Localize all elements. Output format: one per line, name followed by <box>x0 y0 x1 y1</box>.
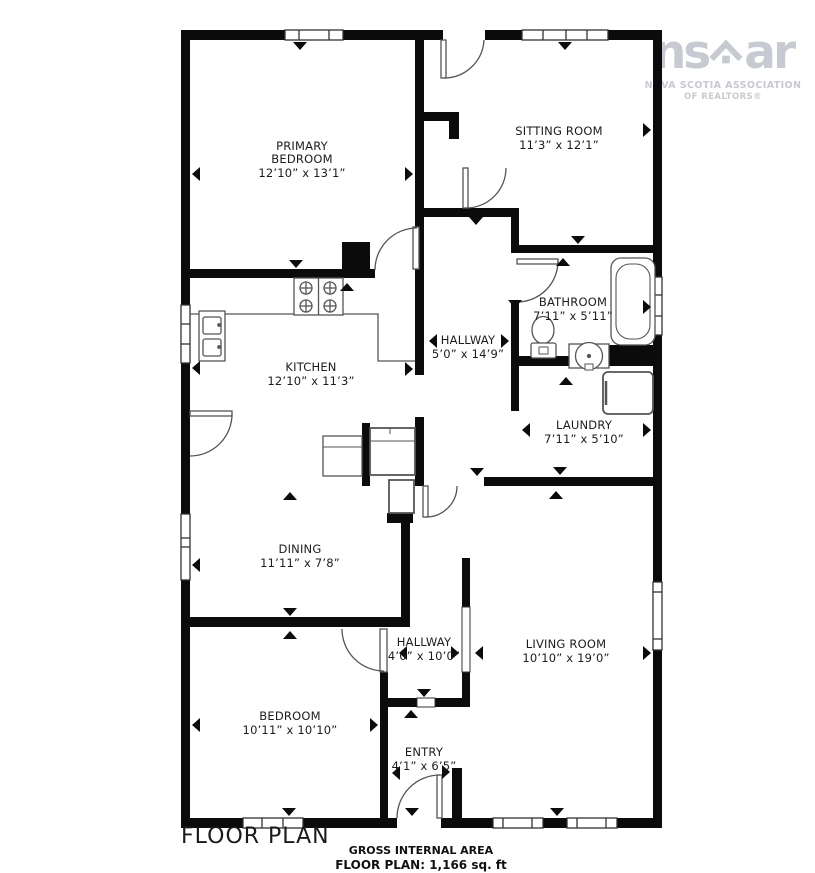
svg-text:10’11” x 10’10”: 10’11” x 10’10” <box>243 723 338 737</box>
svg-text:LAUNDRY: LAUNDRY <box>556 418 613 432</box>
door-sitting-room-entry <box>441 40 484 78</box>
room-label-hallway-upper: HALLWAY 5’0” x 14’9” <box>432 333 504 361</box>
bathtub <box>611 258 655 345</box>
room-label-dining: DINING 11’11” x 7’8” <box>260 542 340 570</box>
cabinet <box>323 436 362 476</box>
svg-text:BEDROOM: BEDROOM <box>259 709 320 723</box>
utility-appliance <box>389 480 414 513</box>
washer <box>603 372 653 414</box>
svg-text:HALLWAY: HALLWAY <box>397 635 452 649</box>
door-kitchen-side <box>190 411 232 456</box>
door-bedroom <box>342 629 387 672</box>
framed-opening <box>417 698 435 707</box>
door-hall-to-living <box>423 486 457 517</box>
floor-plan-page: ns ar NOVA SCOTIA ASSOCIATION OF REALTOR… <box>0 0 815 873</box>
svg-text:10’10” x 19’0”: 10’10” x 19’0” <box>522 651 609 665</box>
svg-text:4’1” x 6’5”: 4’1” x 6’5” <box>392 759 457 773</box>
svg-text:11’11” x 7’8”: 11’11” x 7’8” <box>260 556 340 570</box>
svg-text:HALLWAY: HALLWAY <box>441 333 496 347</box>
room-label-living-room: LIVING ROOM 10’10” x 19’0” <box>522 637 609 665</box>
window-dining <box>181 514 190 580</box>
svg-text:PRIMARY: PRIMARY <box>276 139 329 153</box>
svg-text:4’0” x 10’0”: 4’0” x 10’0” <box>388 649 460 663</box>
window-living-room-south-1 <box>493 818 543 828</box>
window-living-room-south-2 <box>567 818 617 828</box>
svg-text:5’0” x 14’9”: 5’0” x 14’9” <box>432 347 504 361</box>
svg-text:LIVING ROOM: LIVING ROOM <box>526 637 606 651</box>
svg-text:ENTRY: ENTRY <box>405 745 444 759</box>
refrigerator <box>370 428 415 475</box>
gross-internal-area-label: GROSS INTERNAL AREA <box>180 844 662 857</box>
window-primary-bedroom <box>285 30 343 40</box>
floor-plan-area-value: FLOOR PLAN: 1,166 sq. ft <box>180 858 662 872</box>
svg-text:12’10” x 13’1”: 12’10” x 13’1” <box>258 166 345 180</box>
svg-text:SITTING ROOM: SITTING ROOM <box>515 124 603 138</box>
svg-text:KITCHEN: KITCHEN <box>285 360 336 374</box>
room-label-primary-bedroom: PRIMARY BEDROOM 12’10” x 13’1” <box>258 139 345 180</box>
svg-text:11’3” x 12’1”: 11’3” x 12’1” <box>519 138 599 152</box>
footer: GROSS INTERNAL AREA FLOOR PLAN: 1,166 sq… <box>180 844 662 873</box>
room-label-kitchen: KITCHEN 12’10” x 11’3” <box>267 360 354 388</box>
svg-text:12’10” x 11’3”: 12’10” x 11’3” <box>267 374 354 388</box>
kitchen-sink <box>199 311 225 361</box>
svg-text:BATHROOM: BATHROOM <box>539 295 607 309</box>
door-entry-front <box>397 775 442 818</box>
door-upper-hallway <box>463 168 506 208</box>
svg-text:7’11” x 5’10”: 7’11” x 5’10” <box>544 432 624 446</box>
svg-text:7’11” x 5’11”: 7’11” x 5’11” <box>533 309 613 323</box>
room-label-entry: ENTRY 4’1” x 6’5” <box>392 745 457 773</box>
bathroom-sink <box>569 343 609 371</box>
pass-through-opening <box>462 607 470 672</box>
room-label-hallway-lower: HALLWAY 4’0” x 10’0” <box>388 635 460 663</box>
room-labels: PRIMARY BEDROOM 12’10” x 13’1” SITTING R… <box>243 124 624 773</box>
room-label-laundry: LAUNDRY 7’11” x 5’10” <box>544 418 624 446</box>
room-label-sitting-room: SITTING ROOM 11’3” x 12’1” <box>515 124 603 152</box>
stove <box>294 278 343 315</box>
chimney-block <box>342 242 370 272</box>
room-label-bedroom: BEDROOM 10’11” x 10’10” <box>243 709 338 737</box>
window-kitchen <box>181 305 190 363</box>
window-living-room <box>653 582 662 650</box>
svg-text:BEDROOM: BEDROOM <box>271 152 332 166</box>
floor-plan-drawing: PRIMARY BEDROOM 12’10” x 13’1” SITTING R… <box>0 0 815 873</box>
room-label-bathroom: BATHROOM 7’11” x 5’11” <box>533 295 613 323</box>
door-primary-bedroom <box>375 227 419 270</box>
svg-text:DINING: DINING <box>279 542 322 556</box>
window-sitting-room <box>522 30 608 40</box>
